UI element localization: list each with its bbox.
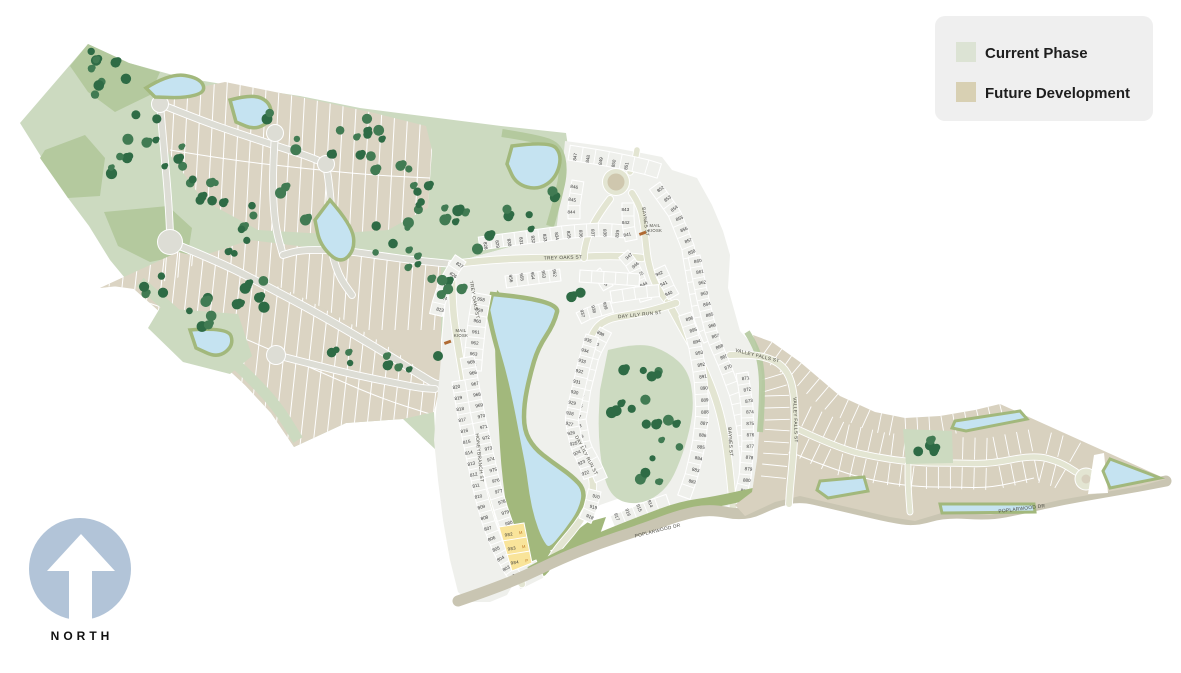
svg-text:961: 961	[472, 329, 481, 335]
svg-text:Current Phase: Current Phase	[985, 45, 1088, 62]
svg-text:875: 875	[746, 421, 754, 426]
svg-text:843: 843	[621, 207, 629, 212]
svg-text:KIOSK: KIOSK	[454, 333, 468, 338]
svg-text:885: 885	[697, 444, 706, 450]
svg-text:874: 874	[746, 409, 754, 414]
svg-text:880: 880	[743, 477, 752, 483]
svg-text:889: 889	[701, 397, 709, 402]
svg-text:NORTH: NORTH	[51, 629, 114, 643]
svg-text:839: 839	[615, 229, 621, 238]
svg-text:953: 953	[541, 270, 547, 279]
svg-text:Future Development: Future Development	[985, 85, 1130, 102]
svg-text:836: 836	[578, 230, 584, 238]
svg-text:962: 962	[471, 340, 480, 346]
svg-text:842: 842	[622, 220, 630, 225]
svg-text:844: 844	[567, 210, 575, 215]
svg-text:886: 886	[699, 432, 708, 438]
svg-text:887: 887	[700, 420, 709, 426]
svg-text:878: 878	[745, 455, 754, 461]
svg-text:837: 837	[590, 229, 596, 237]
svg-text:952: 952	[552, 269, 558, 278]
svg-text:888: 888	[701, 409, 709, 414]
svg-text:877: 877	[746, 444, 754, 449]
svg-text:KIOSK: KIOSK	[648, 228, 662, 233]
svg-text:890: 890	[700, 385, 708, 390]
svg-text:879: 879	[744, 466, 753, 472]
svg-text:838: 838	[602, 229, 608, 237]
svg-text:876: 876	[747, 432, 755, 437]
